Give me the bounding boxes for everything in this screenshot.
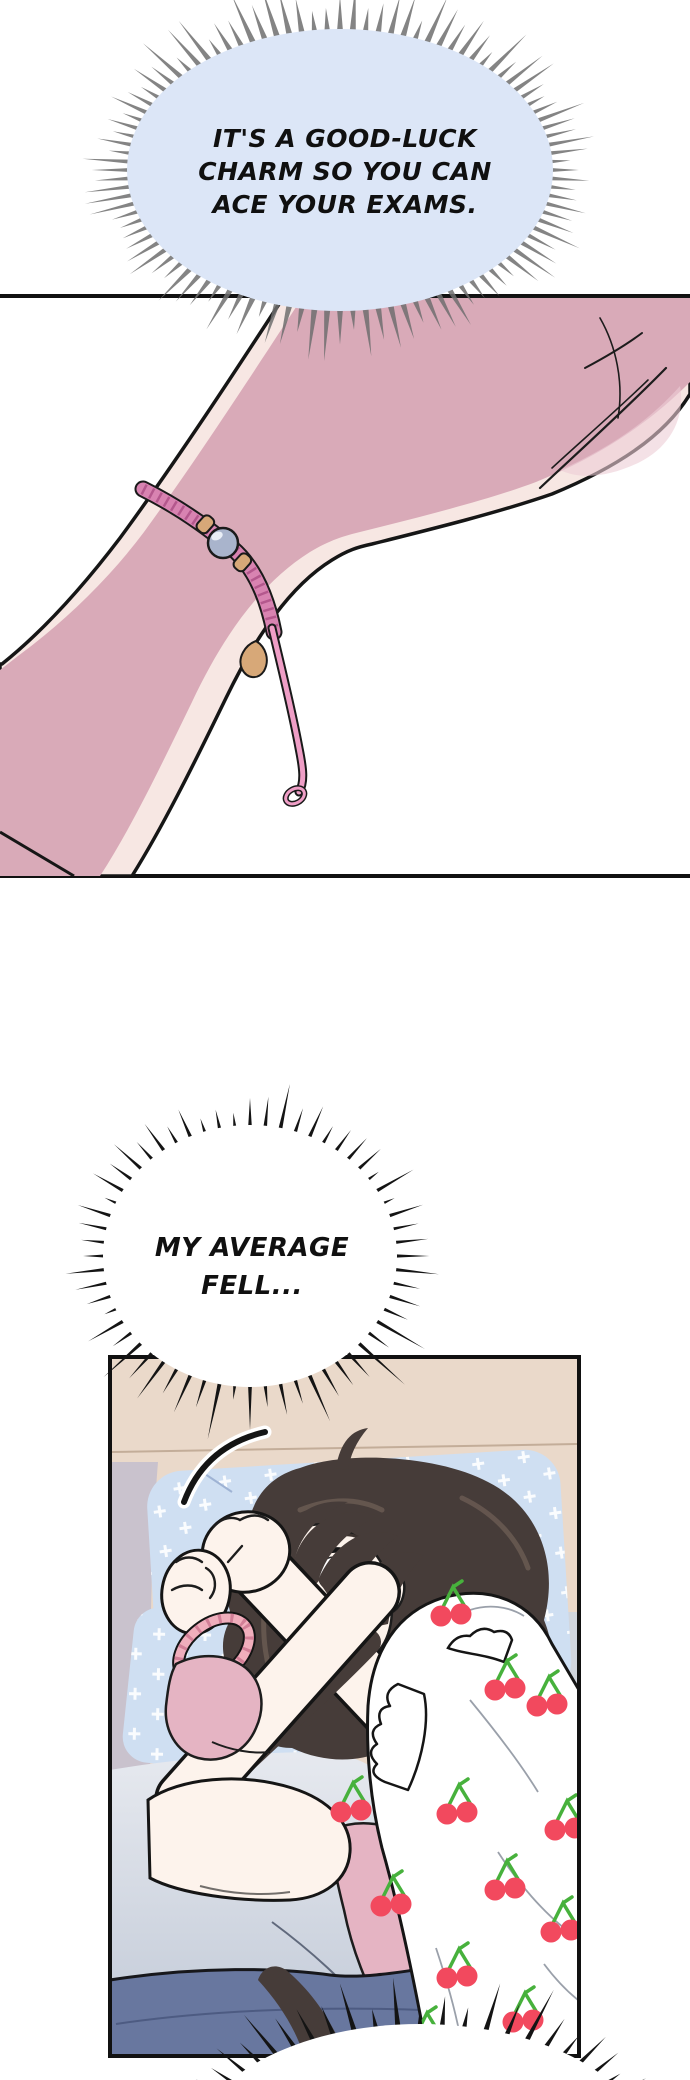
burst-spike	[179, 21, 215, 65]
bedroom-illustration	[110, 1428, 586, 2056]
burst-spike	[83, 159, 134, 164]
webtoon-page: IT'S A GOOD-LUCK CHARM SO YOU CAN ACE YO…	[0, 0, 690, 2080]
burst-spike	[66, 1267, 111, 1274]
charm-line-3: ACE YOUR EXAMS.	[210, 190, 477, 219]
bracelet-blue-bead	[208, 528, 238, 558]
burst-spike	[85, 184, 135, 192]
panel-arm-bracelet	[0, 294, 690, 878]
burst-spike	[277, 1084, 290, 1134]
burst-spike	[546, 176, 589, 181]
burst-spike	[527, 223, 579, 248]
arm-skin-fill	[0, 298, 690, 876]
arm-illustration	[0, 298, 690, 876]
burst-spike	[92, 168, 133, 172]
comic-artwork: IT'S A GOOD-LUCK CHARM SO YOU CAN ACE YO…	[0, 0, 690, 2080]
burst-spike	[371, 1317, 425, 1349]
charm-line-1: IT'S A GOOD-LUCK	[213, 124, 478, 153]
burst-spike	[390, 1267, 439, 1274]
average-line-1: MY AVERAGE	[155, 1233, 349, 1263]
burst-spike	[85, 192, 137, 204]
panel-bedroom	[110, 1357, 586, 2056]
charm-line-2: CHARM SO YOU CAN	[198, 157, 492, 186]
burst-spike	[532, 103, 584, 124]
burst-spike	[543, 136, 594, 147]
burst-spike	[211, 2068, 237, 2080]
burst-spike	[231, 0, 258, 48]
average-line-2: FELL...	[201, 1271, 303, 1301]
